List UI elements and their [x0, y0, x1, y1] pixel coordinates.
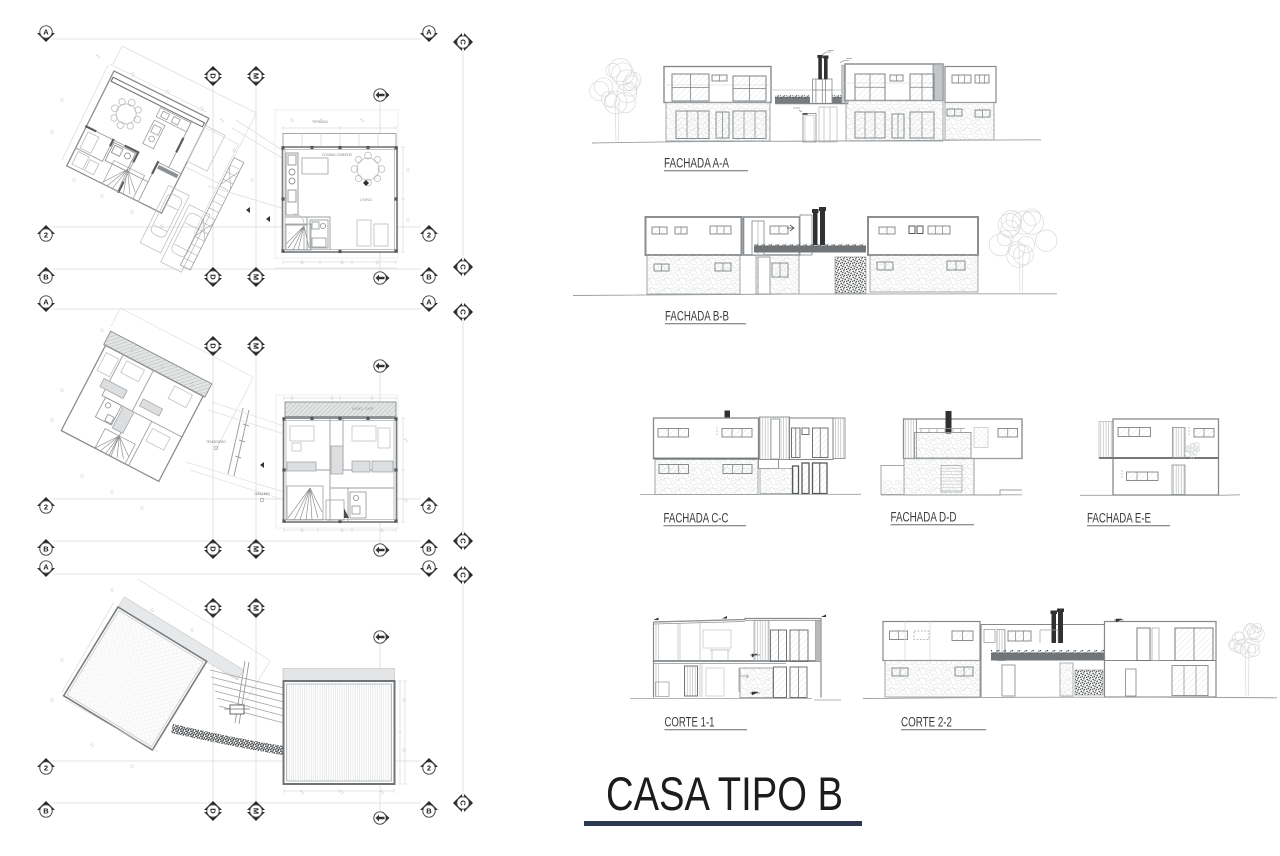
svg-text:COCINA / COMEDOR: COCINA / COMEDOR [322, 153, 352, 157]
svg-text:TENDEDERO: TENDEDERO [206, 440, 226, 444]
svg-text:C: C [458, 264, 467, 270]
svg-text:M: M [251, 274, 260, 280]
svg-text:M: M [251, 343, 260, 349]
svg-text:D: D [208, 546, 217, 552]
svg-text:M: M [251, 605, 260, 611]
svg-text:M: M [251, 808, 260, 814]
svg-text:B: B [426, 807, 432, 816]
svg-text:B: B [426, 273, 432, 282]
svg-text:FACHADA A-A: FACHADA A-A [664, 156, 729, 171]
svg-text:D: D [208, 274, 217, 280]
svg-text:B: B [43, 273, 49, 282]
svg-text:CORTE 1-1: CORTE 1-1 [665, 715, 715, 730]
svg-text:C: C [458, 309, 467, 315]
svg-text:C: C [458, 572, 467, 578]
svg-text:A: A [426, 28, 432, 37]
svg-text:2: 2 [427, 231, 431, 240]
svg-text:2: 2 [44, 764, 48, 773]
svg-text:CORTE 2-2: CORTE 2-2 [901, 715, 952, 730]
svg-text:LIVING: LIVING [360, 198, 372, 202]
svg-text:B: B [426, 545, 432, 554]
svg-text:2: 2 [427, 503, 431, 512]
svg-text:NIVEL SUP.: NIVEL SUP. [352, 407, 374, 411]
svg-text:A: A [426, 298, 432, 307]
svg-text:B: B [43, 545, 49, 554]
svg-text:M: M [251, 546, 260, 552]
svg-text:CASA TIPO B: CASA TIPO B [606, 767, 843, 820]
svg-text:C: C [458, 800, 467, 806]
svg-text:A: A [43, 298, 49, 307]
svg-text:C: C [458, 39, 467, 45]
svg-text:A: A [426, 563, 432, 572]
svg-text:2: 2 [44, 503, 48, 512]
svg-text:D: D [208, 343, 217, 349]
svg-text:TERRAZA: TERRAZA [312, 120, 329, 124]
svg-text:C.MAQUINAS: C.MAQUINAS [254, 492, 271, 496]
svg-text:D: D [208, 73, 217, 79]
svg-text:D: D [208, 808, 217, 814]
svg-text:M: M [251, 73, 260, 79]
svg-text:B: B [43, 807, 49, 816]
svg-text:D: D [208, 605, 217, 611]
svg-text:A: A [43, 563, 49, 572]
svg-text:FACHADA B-B: FACHADA B-B [665, 309, 729, 324]
svg-text:2: 2 [44, 231, 48, 240]
svg-text:2: 2 [427, 764, 431, 773]
svg-text:FACHADA E-E: FACHADA E-E [1087, 511, 1151, 526]
svg-text:A: A [43, 28, 49, 37]
svg-text:FACHADA D-D: FACHADA D-D [891, 510, 957, 525]
svg-text:C: C [458, 538, 467, 544]
svg-text:FACHADA C-C: FACHADA C-C [664, 511, 729, 526]
